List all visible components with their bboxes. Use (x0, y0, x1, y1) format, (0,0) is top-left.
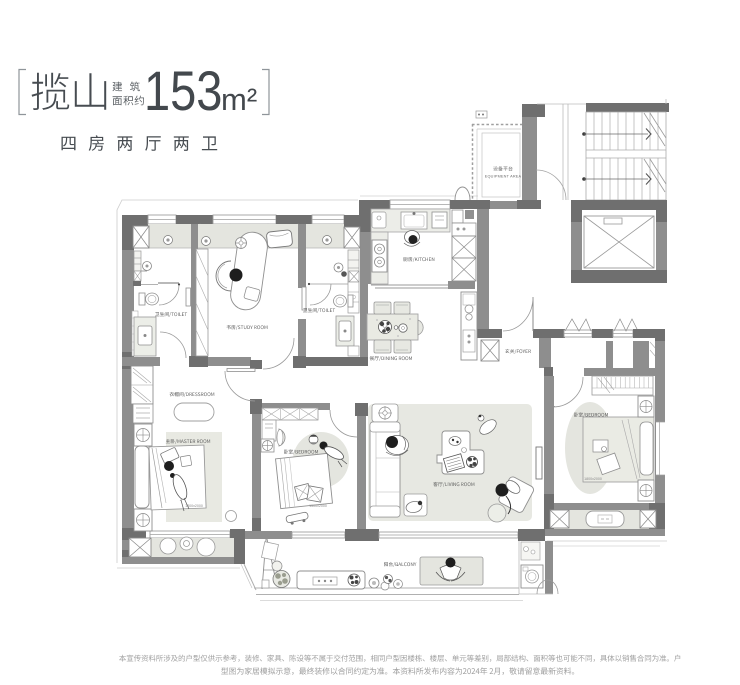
svg-text:153: 153 (144, 59, 222, 122)
svg-text:1500x2000: 1500x2000 (309, 504, 327, 508)
svg-text:EQUIPMENT AREA: EQUIPMENT AREA (485, 175, 522, 179)
svg-text:1800x2000: 1800x2000 (185, 504, 203, 508)
svg-text:1800x2000: 1800x2000 (584, 477, 602, 481)
svg-text:m²: m² (221, 82, 257, 117)
